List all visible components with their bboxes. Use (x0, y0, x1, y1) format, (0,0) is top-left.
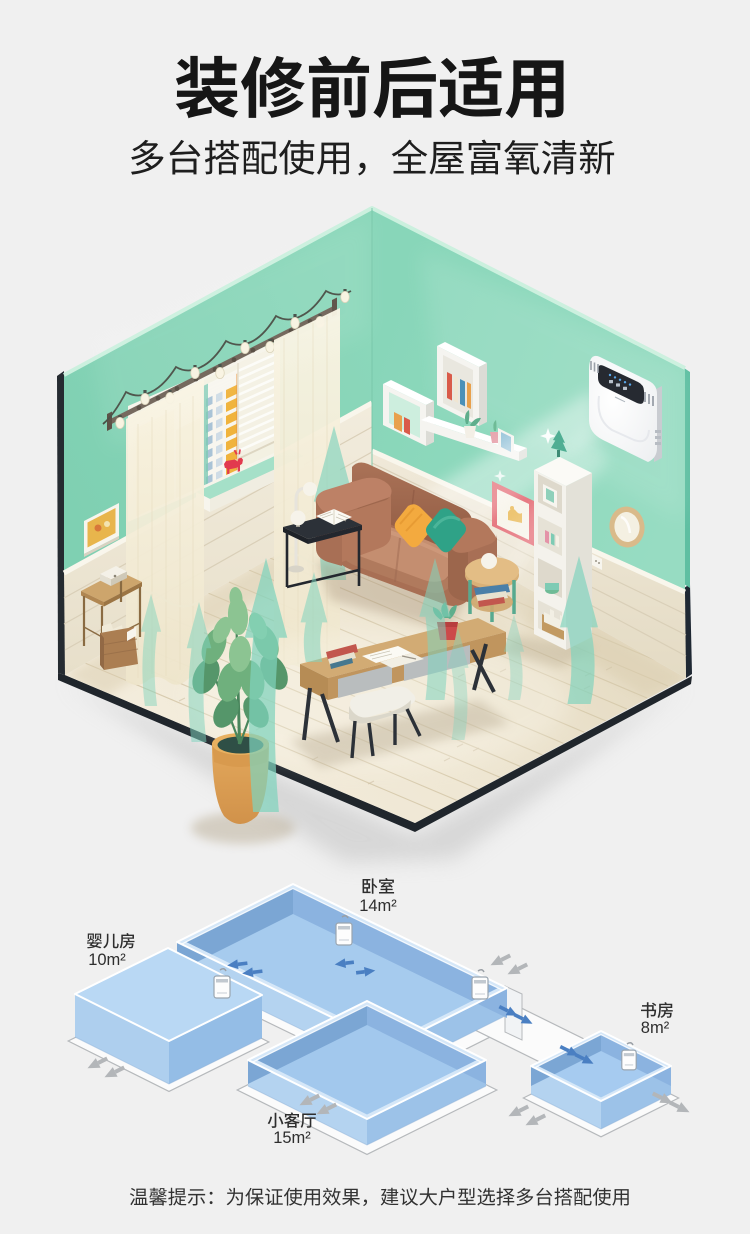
svg-text:14m²: 14m² (359, 897, 397, 915)
svg-text:8m²: 8m² (641, 1019, 670, 1037)
svg-text:15m²: 15m² (273, 1129, 311, 1147)
svg-text:10m²: 10m² (88, 951, 126, 969)
